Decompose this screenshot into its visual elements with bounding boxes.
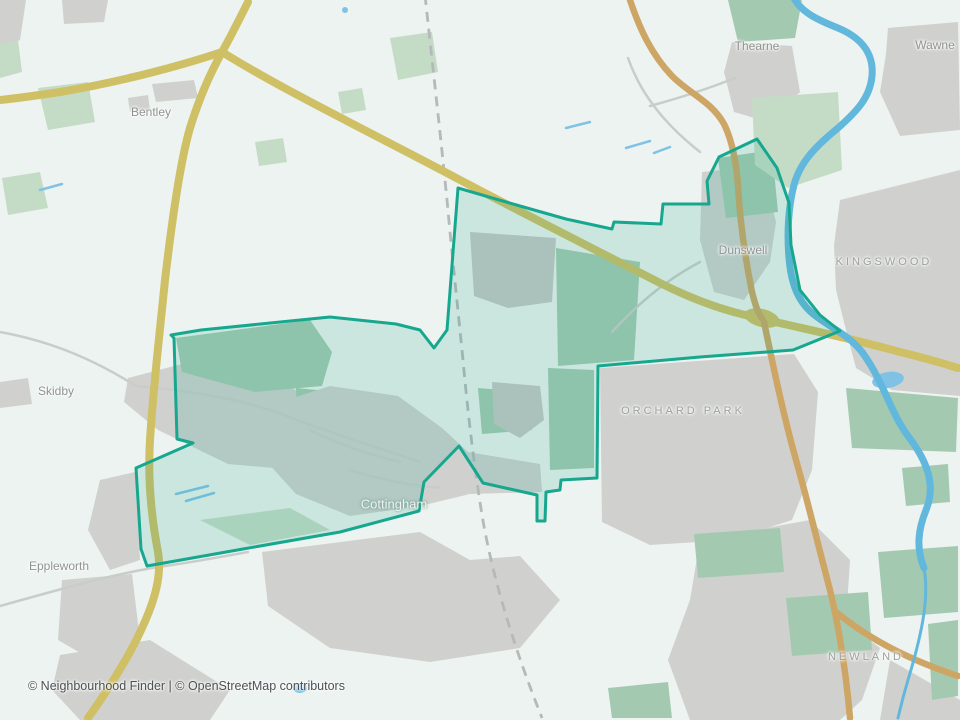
place-label-eppleworth: Eppleworth	[29, 559, 89, 573]
urban-area-topleft-corner	[0, 0, 26, 48]
place-label-orchard-park: ORCHARD PARK	[621, 405, 745, 417]
woodland-topcenter	[390, 32, 438, 80]
urban-area-skidby-west	[0, 378, 32, 408]
woodland-br-2	[786, 592, 872, 656]
place-label-dunswell: Dunswell	[719, 243, 768, 257]
place-label-kingswood: KINGSWOOD	[836, 256, 933, 268]
woodland-br-4	[928, 620, 958, 700]
urban-area-westlane	[88, 472, 140, 570]
pond-top	[342, 7, 348, 13]
minor-road-dunswell-north	[628, 58, 700, 152]
map-attribution: © Neighbourhood Finder | © OpenStreetMap…	[28, 679, 345, 693]
woodland-bottom-center	[608, 682, 672, 718]
woodland-br-1	[694, 528, 784, 578]
urban-area-bentley	[152, 80, 198, 102]
stream-topcenter-2	[626, 141, 650, 148]
urban-area-top-small	[62, 0, 108, 24]
woodland-left	[2, 172, 48, 215]
woodland-topleft-corner	[0, 40, 22, 78]
map-canvas[interactable]: Bentley Thearne Wawne KINGSWOOD Dunswell…	[0, 0, 960, 720]
place-label-thearne: Thearne	[735, 39, 780, 53]
place-label-bentley: Bentley	[131, 105, 171, 119]
urban-area-orchard-park	[600, 354, 818, 545]
place-label-wawne: Wawne	[915, 38, 955, 52]
place-label-newland: NEWLAND	[828, 651, 904, 663]
woodland-small-2	[255, 138, 287, 166]
stream-topcenter-1	[566, 122, 590, 128]
place-label-skidby: Skidby	[38, 384, 74, 398]
woodland-small-1	[338, 88, 366, 114]
stream-topcenter-3	[654, 147, 670, 153]
place-label-cottingham: Cottingham	[361, 497, 427, 512]
woodland-topright	[728, 0, 802, 42]
